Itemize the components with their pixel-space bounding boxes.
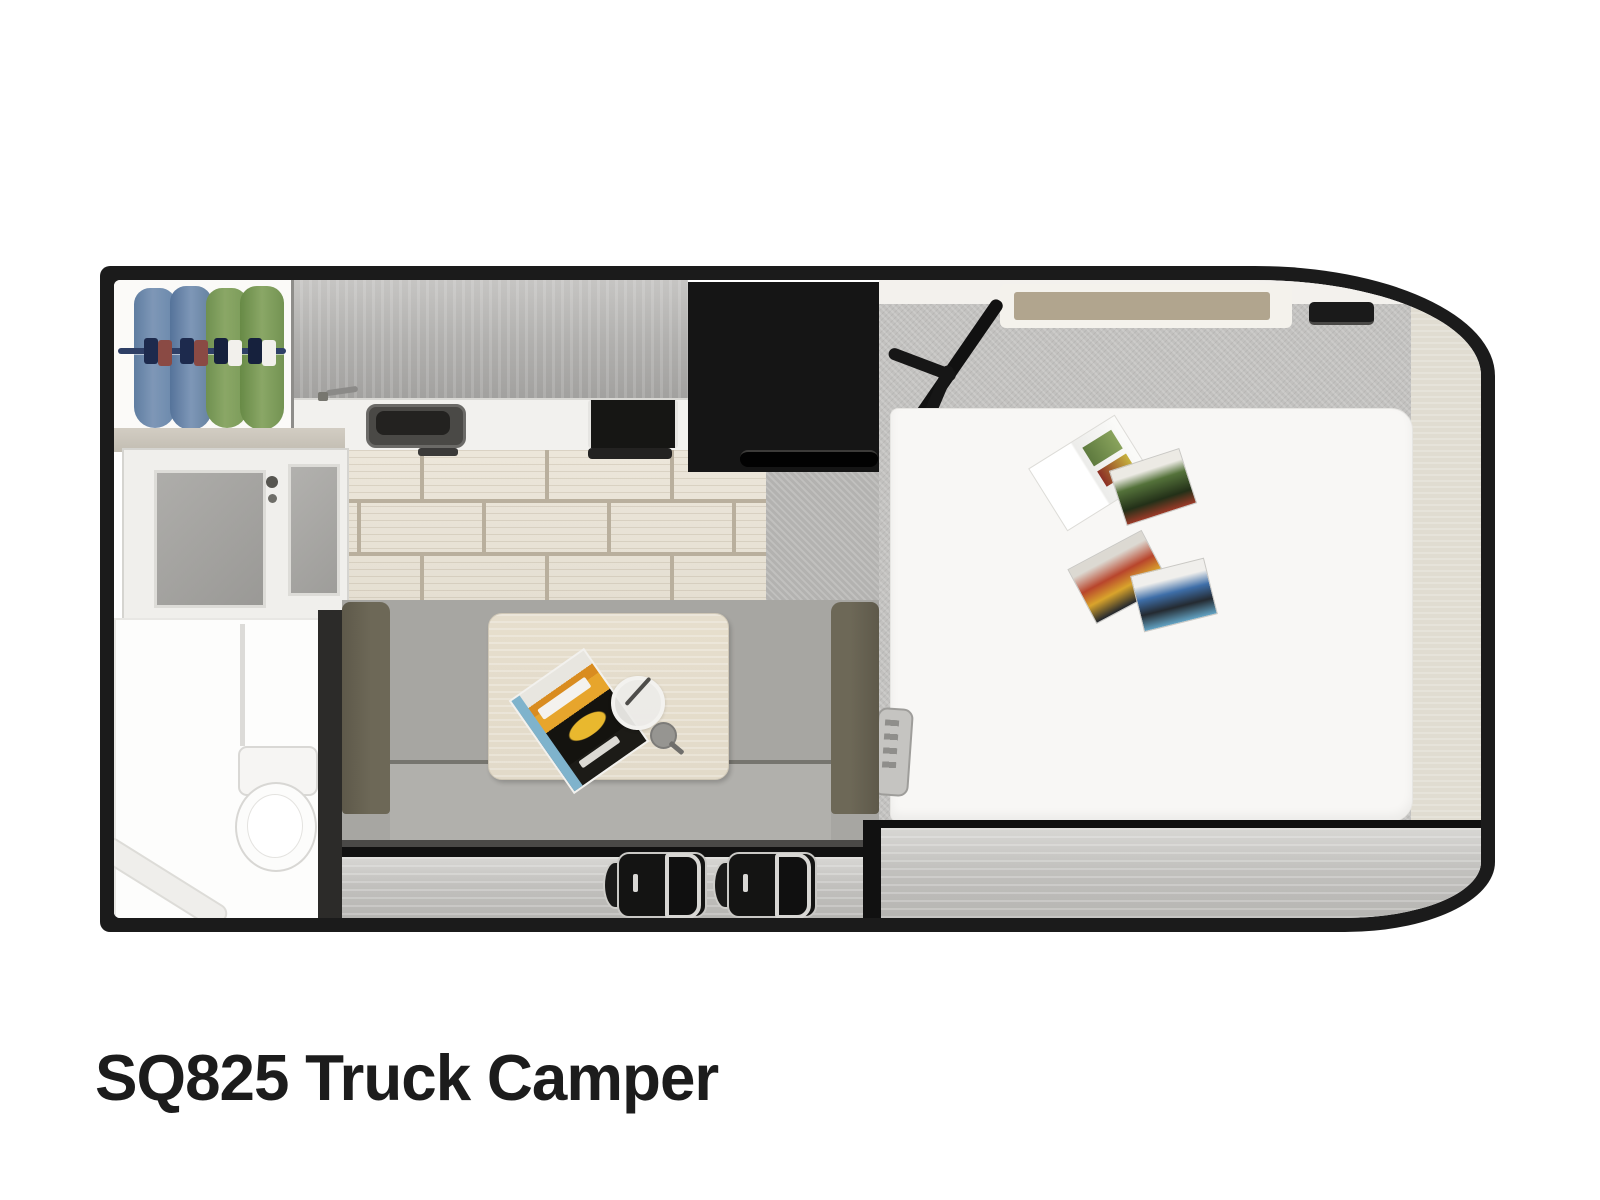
seat-belt-frame	[665, 853, 701, 918]
shower-curb	[114, 834, 231, 918]
tile-grout-line	[345, 552, 766, 556]
tile-joint	[545, 450, 549, 499]
wet-bath	[114, 618, 322, 918]
tile-grout-line	[345, 499, 766, 503]
tile-joint	[420, 450, 424, 499]
plate	[611, 676, 665, 730]
strip-divider-wall	[863, 820, 881, 918]
magazine-caption	[578, 735, 620, 768]
headboard-shelf	[1000, 284, 1292, 328]
gear-texture	[882, 719, 900, 772]
bed-base-edge	[879, 820, 1481, 828]
tile-joint	[607, 503, 611, 552]
hanger-clip	[248, 338, 262, 364]
overhead-cabinet	[291, 280, 688, 404]
bedroom-side-wall	[1411, 300, 1481, 830]
tile-joint	[420, 556, 424, 601]
bed-base-panel	[879, 828, 1481, 918]
galley-floor	[345, 450, 766, 601]
kitchen-faucet-base	[318, 392, 328, 401]
roof-vent	[1309, 302, 1374, 325]
tile-joint	[732, 503, 736, 552]
sofa-armrest-right	[831, 602, 879, 814]
toilet-seat	[247, 794, 303, 858]
wardrobe	[114, 280, 294, 440]
tile-joint	[545, 556, 549, 601]
door-glass-right	[288, 464, 340, 596]
sofa-front-edge	[342, 840, 879, 847]
headboard-shelf-tray	[1014, 292, 1270, 320]
refrigerator	[688, 282, 884, 472]
door-lock	[266, 476, 278, 488]
kitchen-sink-basin	[376, 411, 450, 435]
floorplan	[100, 266, 1495, 932]
jacket-green	[240, 286, 284, 430]
hanger-clip	[214, 338, 228, 364]
hanger-clip	[180, 338, 194, 364]
bath-partition-wall	[318, 610, 342, 918]
shower-wall-seam	[240, 624, 245, 746]
oven-handle	[588, 448, 672, 459]
travel-seat	[603, 850, 708, 916]
cooktop	[588, 400, 678, 448]
seat-belt-frame	[775, 853, 811, 918]
seat-buckle	[743, 874, 748, 892]
hanger-clip	[144, 338, 158, 364]
door-lock	[268, 494, 277, 503]
door-glass-left	[154, 470, 266, 608]
galley-landing	[766, 450, 881, 601]
seat-buckle	[633, 874, 638, 892]
travel-seat	[713, 850, 818, 916]
tile-joint	[670, 556, 674, 601]
cabinet-handle	[418, 448, 458, 456]
fridge-handle	[740, 450, 878, 467]
tile-joint	[482, 503, 486, 552]
floorplan-interior	[114, 280, 1481, 918]
entry-door	[122, 448, 349, 622]
tile-joint	[357, 503, 361, 552]
floorplan-title: SQ825 Truck Camper	[95, 1040, 718, 1115]
sofa-armrest-left	[342, 602, 390, 814]
